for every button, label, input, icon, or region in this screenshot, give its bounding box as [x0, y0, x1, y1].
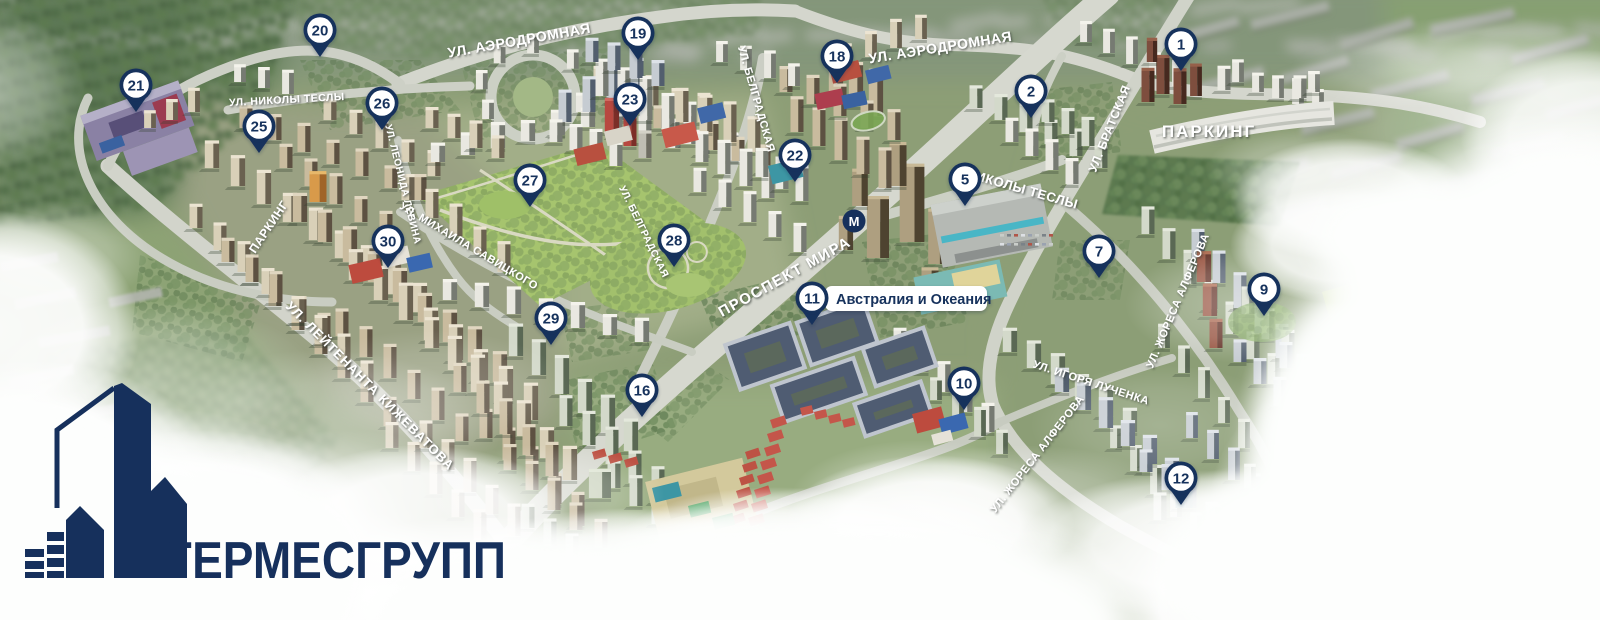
svg-text:ПАРКИНГ: ПАРКИНГ	[1162, 122, 1256, 141]
svg-text:ГЕРМЕСГРУПП: ГЕРМЕСГРУПП	[166, 532, 506, 590]
svg-text:Австралия и Океания: Австралия и Океания	[836, 292, 991, 308]
svg-text:М: М	[849, 214, 860, 229]
svg-text:18: 18	[829, 49, 846, 66]
svg-text:27: 27	[522, 173, 539, 190]
svg-text:30: 30	[380, 234, 397, 251]
svg-text:10: 10	[956, 376, 973, 393]
svg-text:7: 7	[1095, 244, 1103, 261]
svg-text:9: 9	[1260, 282, 1268, 299]
svg-text:26: 26	[374, 96, 391, 113]
svg-text:25: 25	[251, 119, 268, 136]
svg-text:12: 12	[1173, 471, 1190, 488]
svg-text:28: 28	[666, 233, 683, 250]
svg-text:21: 21	[128, 78, 145, 95]
svg-text:20: 20	[312, 23, 329, 40]
svg-text:19: 19	[630, 26, 647, 43]
svg-text:11: 11	[804, 291, 820, 308]
svg-text:5: 5	[961, 172, 969, 189]
svg-text:29: 29	[543, 311, 560, 328]
svg-text:23: 23	[622, 92, 639, 109]
svg-text:1: 1	[1177, 37, 1185, 54]
svg-text:22: 22	[787, 148, 804, 165]
svg-text:2: 2	[1027, 84, 1035, 101]
svg-text:16: 16	[634, 383, 651, 400]
